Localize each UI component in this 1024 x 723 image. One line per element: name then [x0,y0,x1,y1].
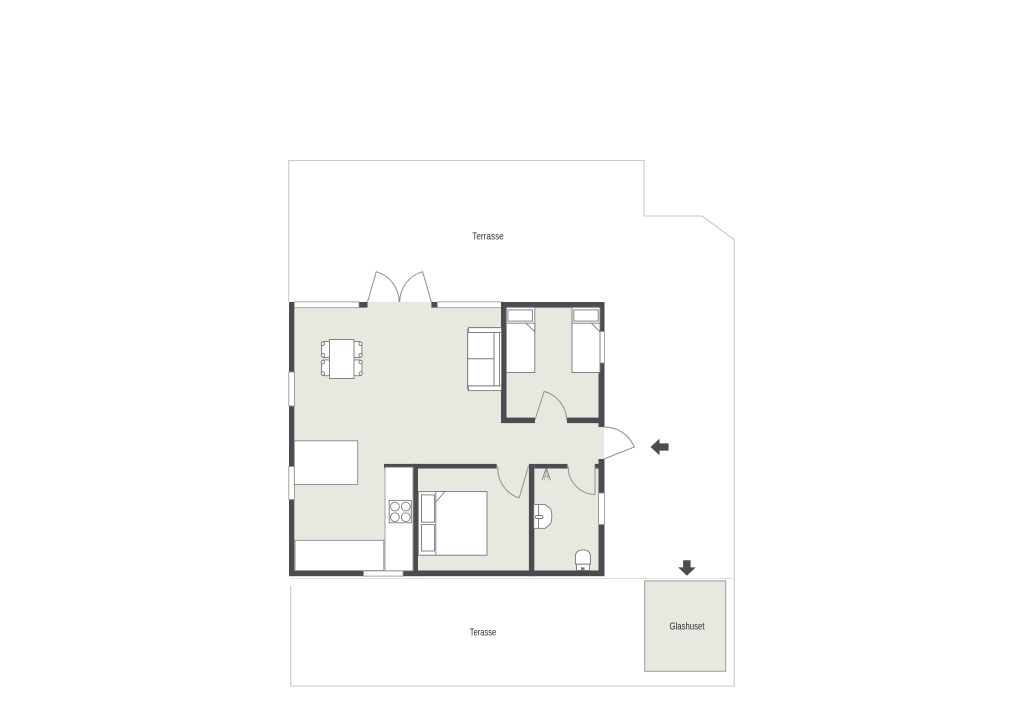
svg-text:Terasse: Terasse [470,627,497,639]
svg-text:Glashuset: Glashuset [670,621,705,633]
svg-text:Terrasse: Terrasse [472,231,504,243]
